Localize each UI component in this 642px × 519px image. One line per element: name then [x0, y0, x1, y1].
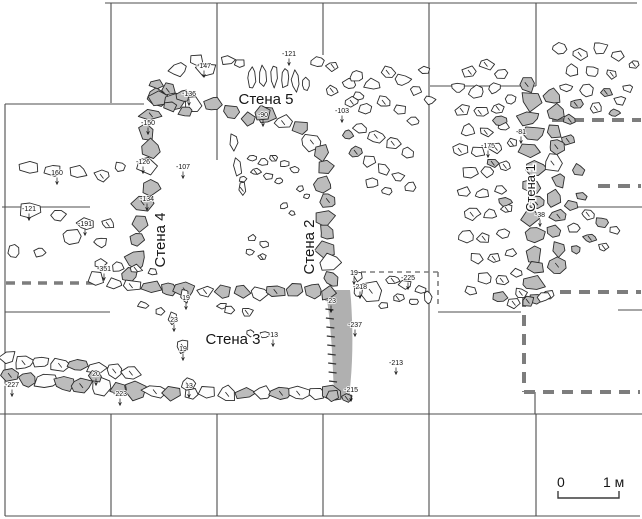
rubble-stone: [366, 178, 378, 188]
wall-stone: [164, 102, 177, 112]
rubble-stone: [263, 173, 272, 179]
rubble-stone: [289, 211, 295, 216]
wall-stone: [516, 112, 538, 126]
site-plan-page: Стена 5Стена 4Стена 2Стена 3Стена 1-147-…: [0, 0, 642, 519]
rubble-stone: [452, 83, 465, 92]
elevation-label: 23: [170, 317, 178, 324]
scale-zero-label: 0: [557, 474, 565, 490]
wall-stone: [526, 246, 541, 263]
wall-stone: [527, 262, 544, 274]
rubble-stone: [489, 83, 501, 94]
rubble-stone: [0, 352, 15, 364]
rubble-stone: [296, 186, 303, 192]
rubble-stone: [311, 57, 325, 67]
wall-stone: [518, 144, 540, 158]
wall-stone: [67, 360, 88, 371]
elevation-label: -23: [326, 298, 336, 305]
wall-stone: [576, 193, 587, 201]
rubble-stone: [248, 234, 256, 240]
rubble-stone: [418, 66, 429, 73]
rubble-stone: [107, 278, 122, 289]
elevation-label: -191: [78, 221, 92, 228]
rubble-stone: [496, 276, 509, 285]
scale-unit-label: 1 м: [603, 474, 624, 490]
wall-stone: [286, 284, 303, 296]
excavation-plan-drawing: Стена 5Стена 4Стена 2Стена 3Стена 1-147-…: [0, 0, 642, 519]
rubble-stone: [363, 156, 376, 167]
rubble-stone: [260, 241, 268, 248]
wall-name-label-wall-5: Стена 5: [238, 91, 293, 108]
elevation-label: -121: [282, 51, 296, 58]
wall-stone: [19, 373, 36, 388]
rubble-stone: [614, 97, 626, 106]
rubble-stone: [290, 166, 299, 172]
wall-stone: [552, 174, 565, 188]
rubble-stone: [260, 65, 267, 86]
rubble-stone: [560, 84, 573, 92]
grid-lines: [0, 3, 642, 516]
rubble-stone: [481, 167, 494, 178]
elevation-label: -147: [197, 63, 211, 70]
rubble-stone: [480, 128, 493, 137]
rubble-stone: [221, 56, 235, 65]
rubble-stone: [33, 357, 49, 367]
rubble-stone: [234, 60, 244, 68]
rubble-stone: [424, 291, 432, 304]
elevation-label: 19: [350, 270, 358, 277]
wall-stone: [343, 130, 354, 139]
rubble-stone: [594, 43, 608, 54]
rubble-stone: [102, 219, 114, 228]
rubble-stone: [568, 223, 581, 232]
elevation-label: -215: [344, 387, 358, 394]
elevation-label: -126: [136, 159, 150, 166]
elevation-label: 19: [179, 346, 187, 353]
rubble-stone: [457, 187, 470, 197]
rubble-stone: [70, 165, 87, 177]
wall-stone: [573, 164, 585, 176]
rubble-stone: [402, 147, 414, 158]
rubble-stone: [611, 51, 624, 61]
rubble-stone: [364, 78, 380, 89]
rubble-stone: [350, 71, 363, 81]
elevation-label: 19: [182, 295, 190, 302]
rubble-stone: [123, 280, 140, 290]
rubble-stone: [115, 162, 125, 171]
rubble-stone: [474, 107, 489, 116]
wall-name-label-wall-2: Стена 2: [301, 219, 318, 274]
wall-stone: [609, 109, 621, 116]
elevation-label: -90: [258, 112, 268, 119]
scale-bar-line: [558, 491, 619, 498]
stones-layer: [0, 43, 639, 403]
wall-stone: [553, 242, 565, 258]
wall-stone: [315, 145, 329, 162]
rubble-stone: [395, 74, 412, 85]
wall-stone: [141, 281, 162, 292]
wall-stone: [138, 109, 162, 120]
wall-stone: [142, 138, 161, 159]
rubble-stone: [251, 168, 262, 174]
rubble-stone: [246, 249, 254, 255]
wall-stone: [71, 378, 92, 393]
wall-stone: [547, 125, 561, 138]
rubble-stone: [479, 59, 494, 70]
rubble-stone: [242, 309, 253, 317]
rubble-stone: [239, 182, 246, 195]
rubble-stone: [113, 262, 125, 272]
rubble-stone: [382, 187, 392, 195]
rubble-stone: [239, 176, 247, 182]
rubble-stone: [309, 388, 324, 399]
rubble-stone: [258, 158, 268, 165]
wall-stone: [564, 200, 577, 210]
rubble-stone: [302, 77, 309, 90]
elevation-label: -13: [268, 332, 278, 339]
wall-stone: [316, 211, 335, 227]
wall-stone: [224, 106, 240, 119]
rubble-stone: [545, 154, 562, 172]
rubble-stone: [455, 105, 470, 116]
wall-stone: [241, 112, 255, 126]
rubble-stone: [405, 182, 416, 191]
elevation-label: -213: [389, 360, 403, 367]
rubble-stone: [378, 164, 389, 175]
wall-stone: [547, 189, 560, 207]
rubble-stone: [271, 66, 278, 88]
rubble-stone: [275, 178, 283, 184]
elevation-label: -225: [401, 275, 415, 282]
wall-stone: [596, 218, 609, 228]
rubble-stone: [51, 211, 67, 222]
rubble-stone: [465, 286, 477, 295]
rubble-stone: [415, 285, 426, 293]
wall-stone: [525, 228, 545, 243]
rubble-stone: [464, 208, 481, 220]
rubble-stone: [381, 66, 396, 77]
wall-stone: [54, 377, 74, 392]
wall-stone: [324, 272, 338, 287]
rubble-stone: [234, 158, 242, 176]
rubble-stone: [566, 64, 578, 77]
wall-stone: [204, 97, 223, 110]
rubble-stone: [138, 301, 149, 308]
elevation-label: -136: [182, 91, 196, 98]
wall-stone: [493, 292, 508, 302]
wall-stone: [162, 83, 176, 95]
rubble-stone: [511, 268, 523, 277]
scale-bar: 0 1 м: [557, 474, 624, 498]
rubble-stone: [225, 306, 235, 314]
wall-stone: [522, 93, 542, 112]
elevation-label: -107: [176, 164, 190, 171]
rubble-stone: [461, 124, 474, 136]
rubble-stone: [148, 269, 157, 275]
rubble-stone: [379, 303, 388, 309]
rubble-stone: [607, 70, 617, 79]
rubble-stone: [495, 69, 508, 78]
elevation-label: -121: [22, 206, 36, 213]
elevation-label: -38: [535, 212, 545, 219]
elevation-label: -351: [97, 266, 111, 273]
rubble-stone: [580, 84, 594, 97]
elevation-label: -227: [5, 382, 19, 389]
wall-stone: [543, 88, 560, 103]
elevation-label: -223: [113, 391, 127, 398]
elevation-label: 160: [51, 170, 63, 177]
rubble-stone: [496, 229, 509, 239]
rubble-stone: [610, 227, 620, 235]
wall-stone: [143, 180, 161, 197]
rubble-stone: [63, 230, 81, 245]
wall-name-label-wall-3: Стена 3: [205, 331, 260, 348]
wall-name-label-wall-4: Стена 4: [152, 212, 169, 267]
rubble-stone: [230, 134, 238, 151]
wall2-stone-strip: [325, 290, 352, 399]
wall-stone: [547, 225, 561, 237]
rubble-stone: [459, 231, 474, 243]
wall-stone: [314, 176, 331, 193]
rubble-stone: [478, 273, 491, 284]
wall-stone: [292, 122, 307, 135]
rubble-stone: [407, 117, 419, 125]
rubble-stone: [505, 95, 516, 104]
rubble-stone: [410, 87, 421, 96]
rubble-stone: [274, 115, 292, 128]
elevation-label: -175: [481, 143, 495, 150]
rubble-stone: [281, 203, 288, 209]
rubble-stone: [387, 138, 402, 149]
rubble-stone: [8, 245, 19, 258]
wall-name-label-wall-1: Стена 1: [523, 164, 538, 212]
rubble-stone: [281, 161, 289, 167]
rubble-stone: [156, 308, 165, 316]
rubble-stone: [304, 194, 310, 198]
wall-stone: [234, 285, 251, 298]
elevation-label: -237: [348, 322, 362, 329]
wall-stone: [321, 225, 334, 239]
wall-stone: [320, 194, 335, 207]
rubble-stone: [495, 186, 507, 195]
rubble-stone: [16, 356, 34, 369]
rubble-stone: [353, 124, 367, 133]
elevation-label: -150: [141, 120, 155, 127]
rubble-stone: [258, 254, 266, 260]
elevation-label: -81: [516, 129, 526, 136]
wall-stone: [547, 103, 564, 120]
rubble-stone: [484, 209, 497, 218]
rubble-stone: [247, 155, 256, 161]
wall-stone: [214, 285, 230, 298]
elevation-label: 13: [185, 383, 193, 390]
rubble-stone: [291, 70, 299, 92]
rubble-stone: [168, 63, 186, 77]
rubble-stone: [392, 173, 405, 181]
rubble-stone: [453, 144, 468, 156]
rubble-stone: [359, 104, 372, 114]
elevation-label: -103: [335, 108, 349, 115]
rubble-stone: [394, 105, 406, 114]
elevation-label: -218: [353, 284, 367, 291]
rubble-stone: [377, 96, 390, 106]
wall-stone: [523, 276, 545, 290]
rubble-stone: [19, 161, 38, 173]
rubble-stone: [507, 138, 516, 146]
elevation-label: -134: [140, 196, 154, 203]
rubble-stone: [409, 299, 418, 304]
rubble-stone: [34, 248, 46, 257]
wall-stone: [149, 80, 163, 89]
rubble-stone: [289, 386, 310, 399]
rubble-stone: [623, 85, 633, 93]
wall-stone: [572, 246, 581, 254]
wall-stone: [132, 216, 148, 232]
wall-stone: [319, 160, 334, 173]
rubble-stone: [475, 189, 488, 198]
elevation-label: 20: [92, 371, 100, 378]
rubble-stone: [217, 304, 227, 310]
rubble-stone: [586, 67, 598, 77]
wall-stone: [305, 284, 322, 299]
wall-stone: [571, 99, 584, 108]
wall-stone: [130, 234, 145, 247]
rubble-stone: [248, 67, 256, 88]
rubble-stone: [326, 62, 339, 71]
rubble-stone: [198, 387, 214, 399]
rubble-stone: [468, 85, 483, 98]
rubble-stone: [94, 238, 107, 248]
rubble-stone: [424, 96, 436, 105]
rubble-stone: [471, 253, 483, 264]
rubble-stone: [463, 167, 478, 178]
rubble-stone: [537, 293, 551, 302]
rubble-stone: [552, 43, 567, 55]
rubble-stone: [505, 249, 516, 257]
rubble-stone: [282, 69, 289, 88]
rubble-stone: [253, 386, 271, 399]
wall-stone: [235, 388, 256, 399]
